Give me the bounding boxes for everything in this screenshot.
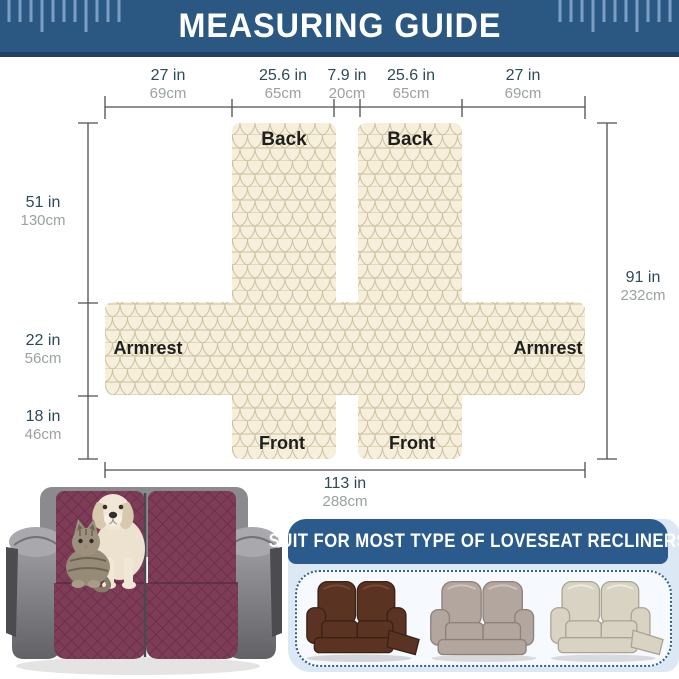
cream-recliner-icon <box>545 576 667 662</box>
brown-recliner-icon <box>301 576 423 662</box>
measurement-lines <box>78 96 617 478</box>
measure-armrest-height: 22 in 56cm <box>8 332 78 368</box>
label-armrest-left: Armrest <box>93 338 203 359</box>
measure-back-length: 51 in 130cm <box>8 194 78 230</box>
measure-top-left-width: 27 in 69cm <box>126 67 210 103</box>
measure-total-length: 91 in 232cm <box>607 269 679 305</box>
cover-flat-layout-drawing <box>0 57 679 480</box>
cover-measurement-diagram: 27 in 69cm 25.6 in 65cm 7.9 in 20cm 25.6… <box>0 57 679 480</box>
ruler-ticks-icon <box>556 0 674 36</box>
ruler-ticks-icon <box>5 0 123 36</box>
label-front-right: Front <box>362 433 462 454</box>
back-front-piece-right <box>358 123 462 459</box>
loveseat-product-photo <box>0 485 288 679</box>
suitability-title: SUIT FOR MOST TYPE OF LOVESEAT RECLINERS <box>268 531 679 553</box>
burgundy-cover-right-seat <box>146 491 238 659</box>
label-armrest-right: Armrest <box>493 338 603 359</box>
label-back-left: Back <box>234 129 334 151</box>
suitability-box: SUIT FOR MOST TYPE OF LOVESEAT RECLINERS <box>288 519 679 672</box>
measuring-guide-infographic: MEASURING GUIDE <box>0 0 679 679</box>
side-strap <box>6 547 18 637</box>
measure-top-back-right-width: 25.6 in 65cm <box>369 67 453 103</box>
suitability-title-bar: SUIT FOR MOST TYPE OF LOVESEAT RECLINERS <box>288 519 668 564</box>
label-front-left: Front <box>232 433 332 454</box>
header-banner: MEASURING GUIDE <box>0 0 679 57</box>
measure-front-length: 18 in 46cm <box>8 408 78 444</box>
measure-top-right-width: 27 in 69cm <box>481 67 565 103</box>
back-front-piece-left <box>232 123 336 459</box>
page-title: MEASURING GUIDE <box>178 7 501 46</box>
floor-shadow <box>16 657 260 675</box>
recliner-examples-panel <box>295 570 672 667</box>
measure-total-width: 113 in 288cm <box>295 475 395 511</box>
side-strap <box>270 547 282 637</box>
taupe-recliner-icon <box>423 576 545 662</box>
label-back-right: Back <box>360 129 460 151</box>
